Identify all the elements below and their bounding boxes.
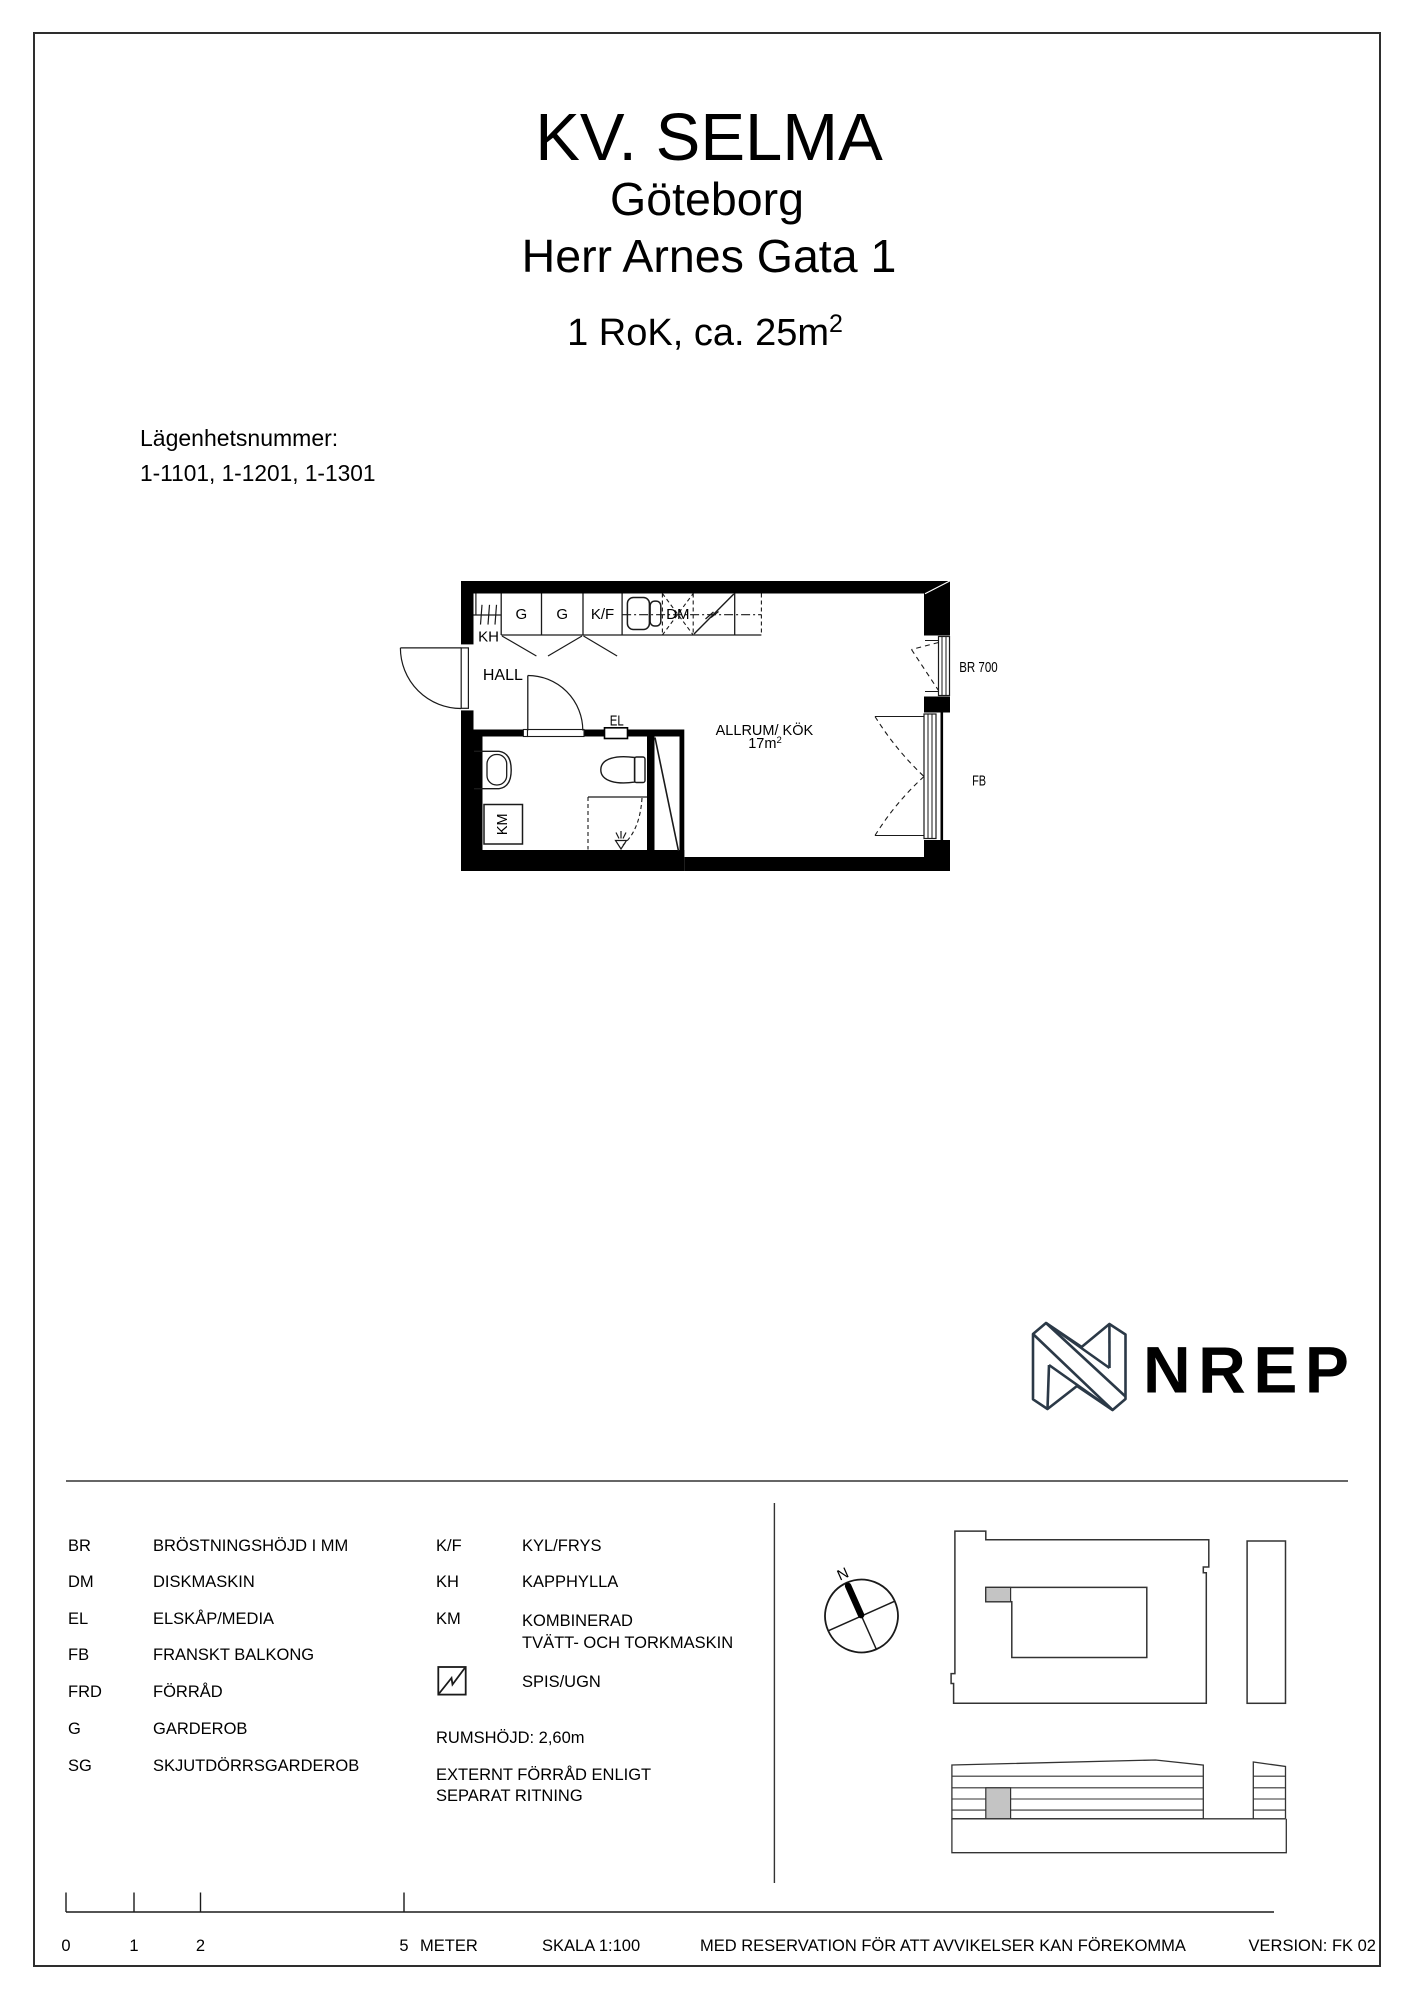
svg-text:KH: KH <box>478 629 499 646</box>
svg-text:KOMBINERAD: KOMBINERAD <box>522 1612 633 1630</box>
svg-text:MED RESERVATION FÖR ATT AVVIKE: MED RESERVATION FÖR ATT AVVIKELSER KAN F… <box>700 1937 1186 1955</box>
svg-text:DM: DM <box>666 606 689 623</box>
svg-text:EXTERNT FÖRRÅD ENLIGT: EXTERNT FÖRRÅD ENLIGT <box>436 1765 651 1784</box>
svg-text:Herr Arnes Gata 1: Herr Arnes Gata 1 <box>522 230 897 282</box>
svg-text:VERSION: FK 02: VERSION: FK 02 <box>1249 1937 1376 1955</box>
svg-text:TVÄTT- OCH TORKMASKIN: TVÄTT- OCH TORKMASKIN <box>522 1634 733 1652</box>
svg-text:Göteborg: Göteborg <box>610 173 804 225</box>
svg-text:NREP: NREP <box>1143 1333 1356 1407</box>
svg-text:DISKMASKIN: DISKMASKIN <box>153 1573 255 1591</box>
svg-text:SG: SG <box>68 1757 92 1775</box>
svg-text:SKJUTDÖRRSGARDEROB: SKJUTDÖRRSGARDEROB <box>153 1757 359 1775</box>
svg-text:KYL/FRYS: KYL/FRYS <box>522 1537 601 1555</box>
svg-text:METER: METER <box>420 1937 478 1955</box>
svg-text:1 RoK, ca. 25m2: 1 RoK, ca. 25m2 <box>567 310 843 354</box>
svg-text:FB: FB <box>972 773 986 790</box>
svg-text:HALL: HALL <box>483 667 523 684</box>
svg-text:K/F: K/F <box>436 1537 462 1555</box>
svg-text:5: 5 <box>399 1937 408 1955</box>
svg-text:BR 700: BR 700 <box>959 659 998 676</box>
svg-text:BR: BR <box>68 1537 91 1555</box>
svg-text:G: G <box>515 606 527 623</box>
svg-text:EL: EL <box>68 1610 88 1628</box>
svg-text:FRD: FRD <box>68 1683 102 1701</box>
svg-text:SEPARAT RITNING: SEPARAT RITNING <box>436 1787 583 1805</box>
svg-text:0: 0 <box>61 1937 70 1955</box>
svg-text:ELSKÅP/MEDIA: ELSKÅP/MEDIA <box>153 1609 274 1628</box>
svg-text:G: G <box>68 1720 81 1738</box>
svg-text:1: 1 <box>129 1937 138 1955</box>
svg-text:SPIS/UGN: SPIS/UGN <box>522 1673 601 1691</box>
svg-text:FB: FB <box>68 1646 89 1664</box>
svg-text:Lägenhetsnummer:: Lägenhetsnummer: <box>140 425 338 451</box>
svg-text:FÖRRÅD: FÖRRÅD <box>153 1682 223 1701</box>
svg-text:KV. SELMA: KV. SELMA <box>535 100 883 175</box>
svg-text:GARDEROB: GARDEROB <box>153 1720 247 1738</box>
svg-text:DM: DM <box>68 1573 94 1591</box>
svg-text:2: 2 <box>196 1937 205 1955</box>
svg-text:K/F: K/F <box>591 606 614 623</box>
svg-text:BRÖSTNINGSHÖJD I MM: BRÖSTNINGSHÖJD I MM <box>153 1537 348 1555</box>
svg-text:KM: KM <box>495 813 511 835</box>
svg-text:KH: KH <box>436 1573 459 1591</box>
svg-text:KAPPHYLLA: KAPPHYLLA <box>522 1573 618 1591</box>
svg-text:1-1101, 1-1201, 1-1301: 1-1101, 1-1201, 1-1301 <box>140 460 375 486</box>
svg-text:SKALA 1:100: SKALA 1:100 <box>542 1937 640 1955</box>
svg-text:EL: EL <box>610 712 624 729</box>
svg-text:RUMSHÖJD: 2,60m: RUMSHÖJD: 2,60m <box>436 1729 585 1747</box>
svg-text:FRANSKT BALKONG: FRANSKT BALKONG <box>153 1646 314 1664</box>
svg-text:G: G <box>556 606 568 623</box>
svg-text:KM: KM <box>436 1610 461 1628</box>
